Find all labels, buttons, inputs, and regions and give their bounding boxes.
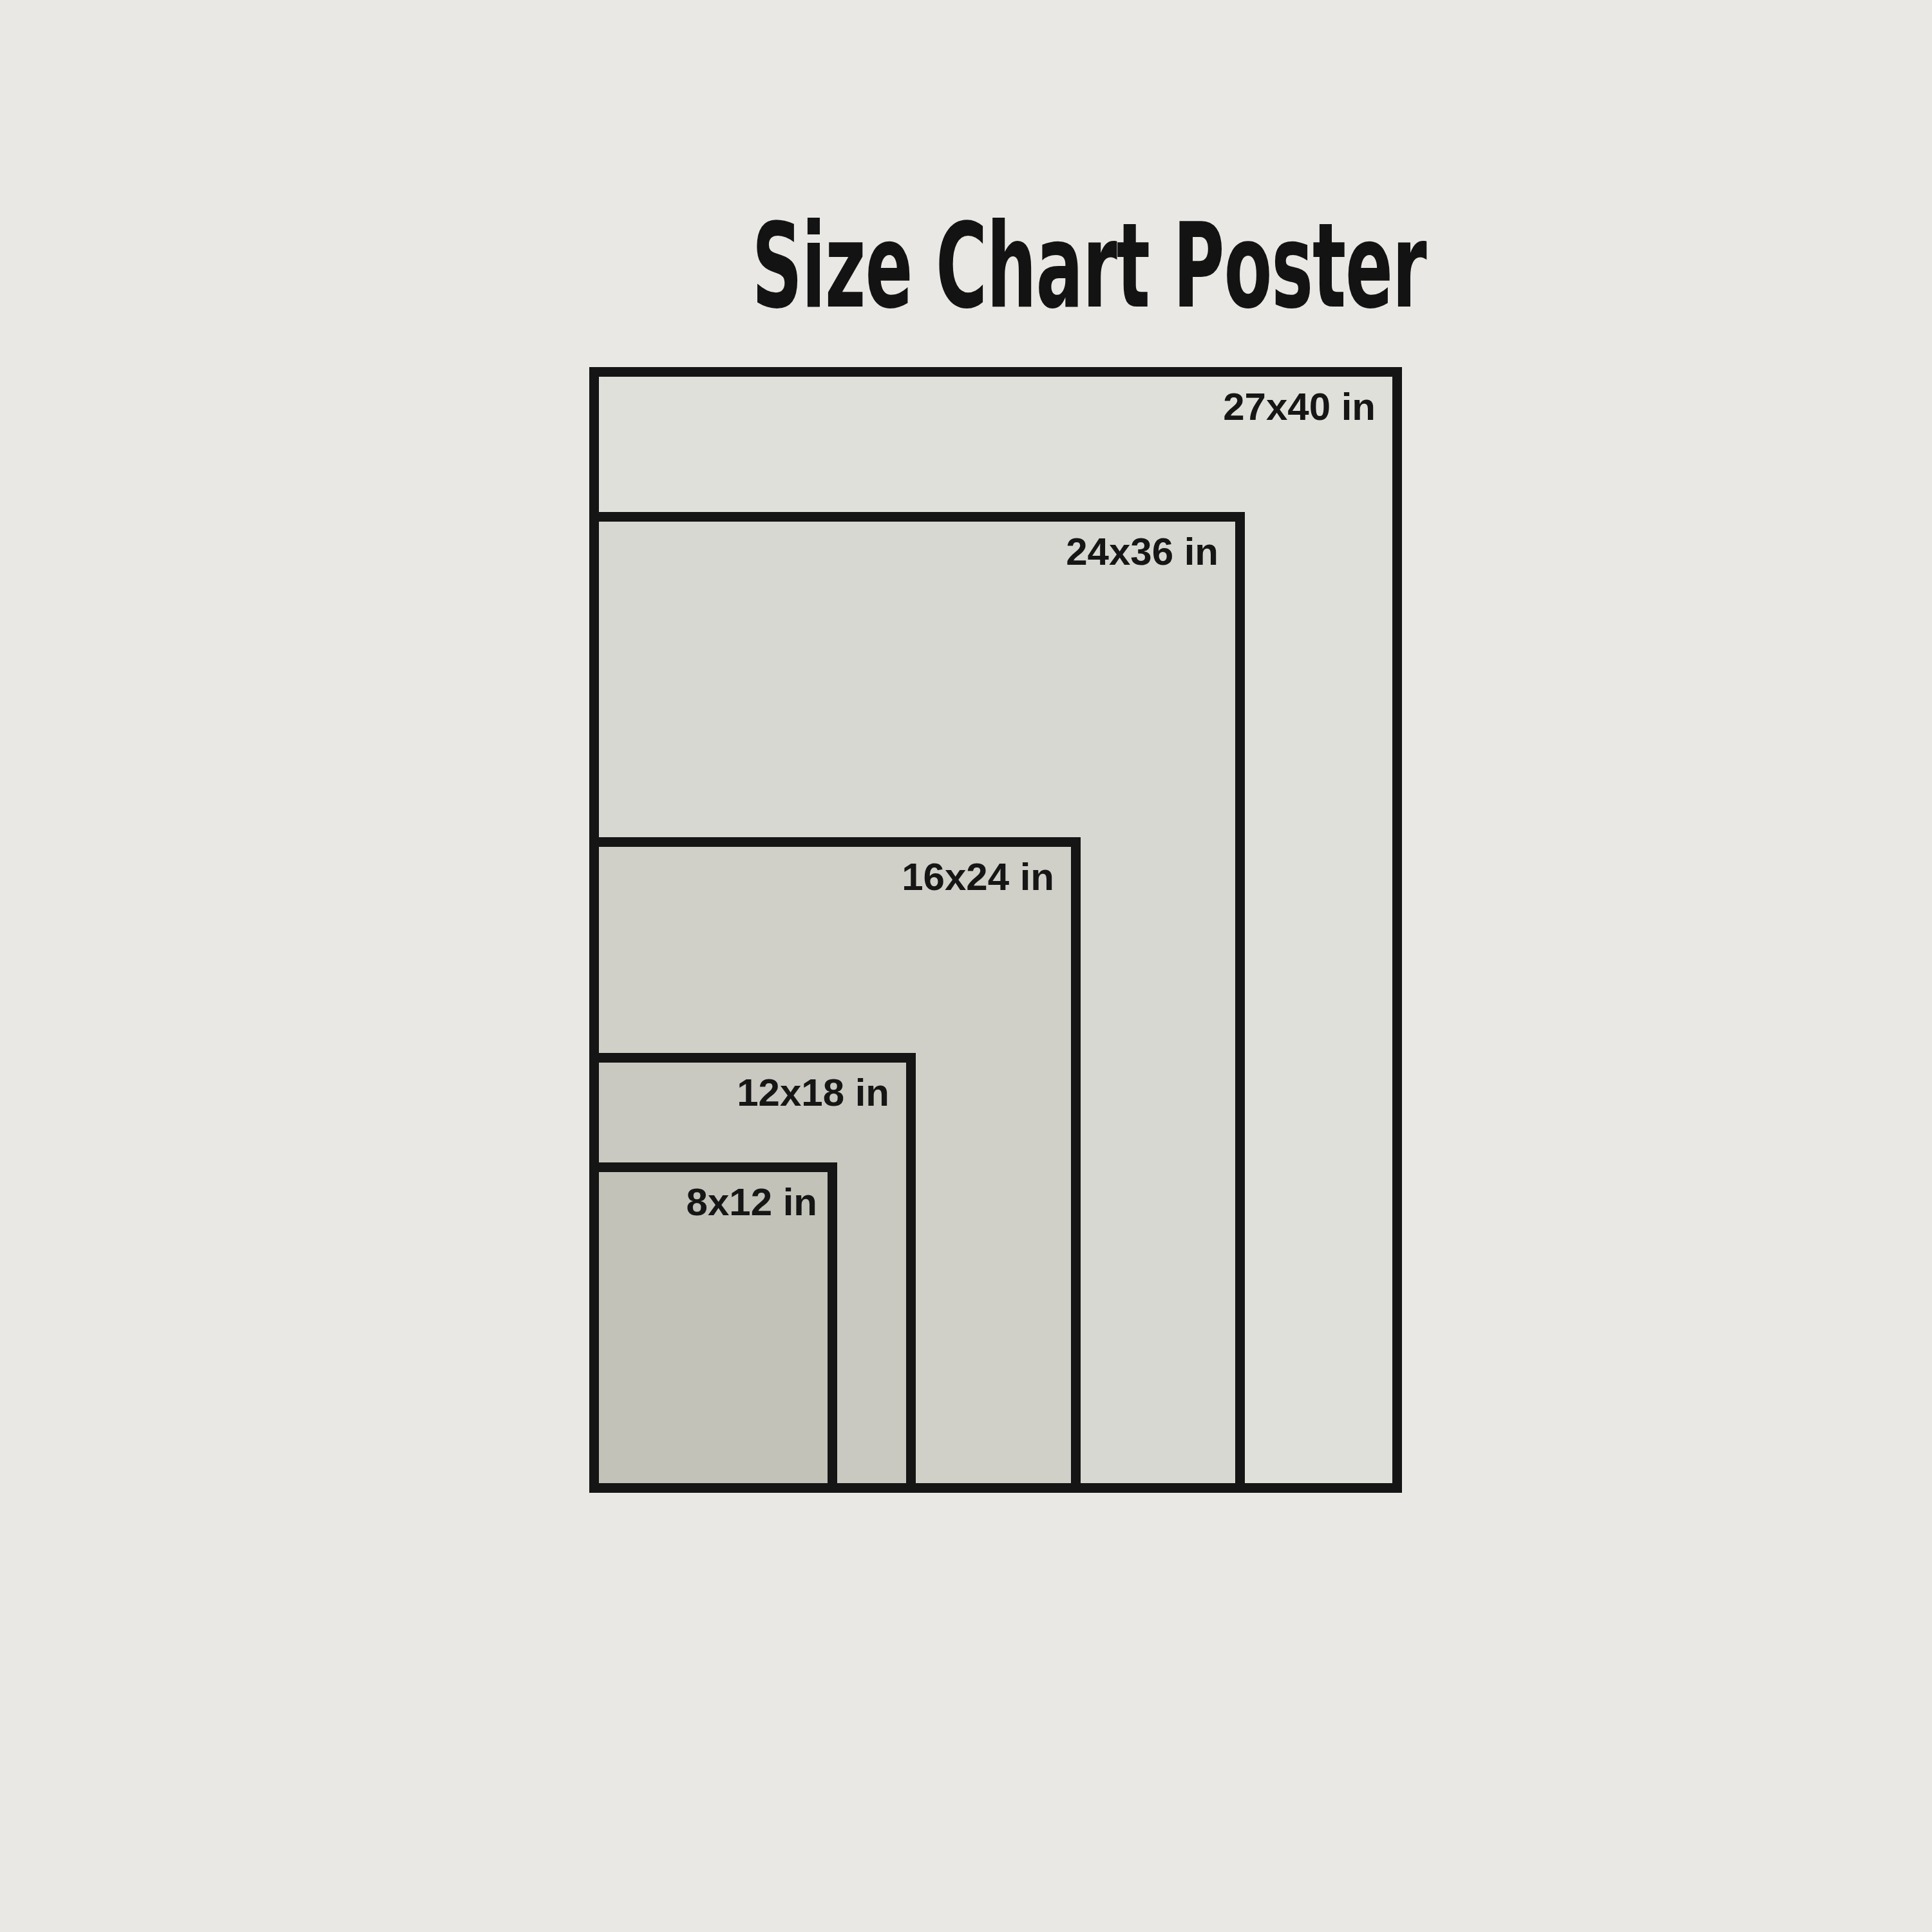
size-label-8x12: 8x12 in: [687, 1181, 817, 1224]
page-title: Size Chart Poster: [752, 207, 1239, 325]
size-rect-stack: 27x40 in 24x36 in 16x24 in 12x18 in 8x12…: [589, 367, 1402, 1493]
size-label-16x24: 16x24 in: [902, 856, 1054, 898]
poster-size-chart: Size Chart Poster 27x40 in 24x36 in 16x2…: [0, 0, 1932, 1932]
size-rect-8x12: 8x12 in: [589, 1162, 837, 1493]
size-label-24x36: 24x36 in: [1066, 531, 1218, 573]
size-label-27x40: 27x40 in: [1223, 386, 1376, 428]
size-label-12x18: 12x18 in: [737, 1072, 889, 1114]
